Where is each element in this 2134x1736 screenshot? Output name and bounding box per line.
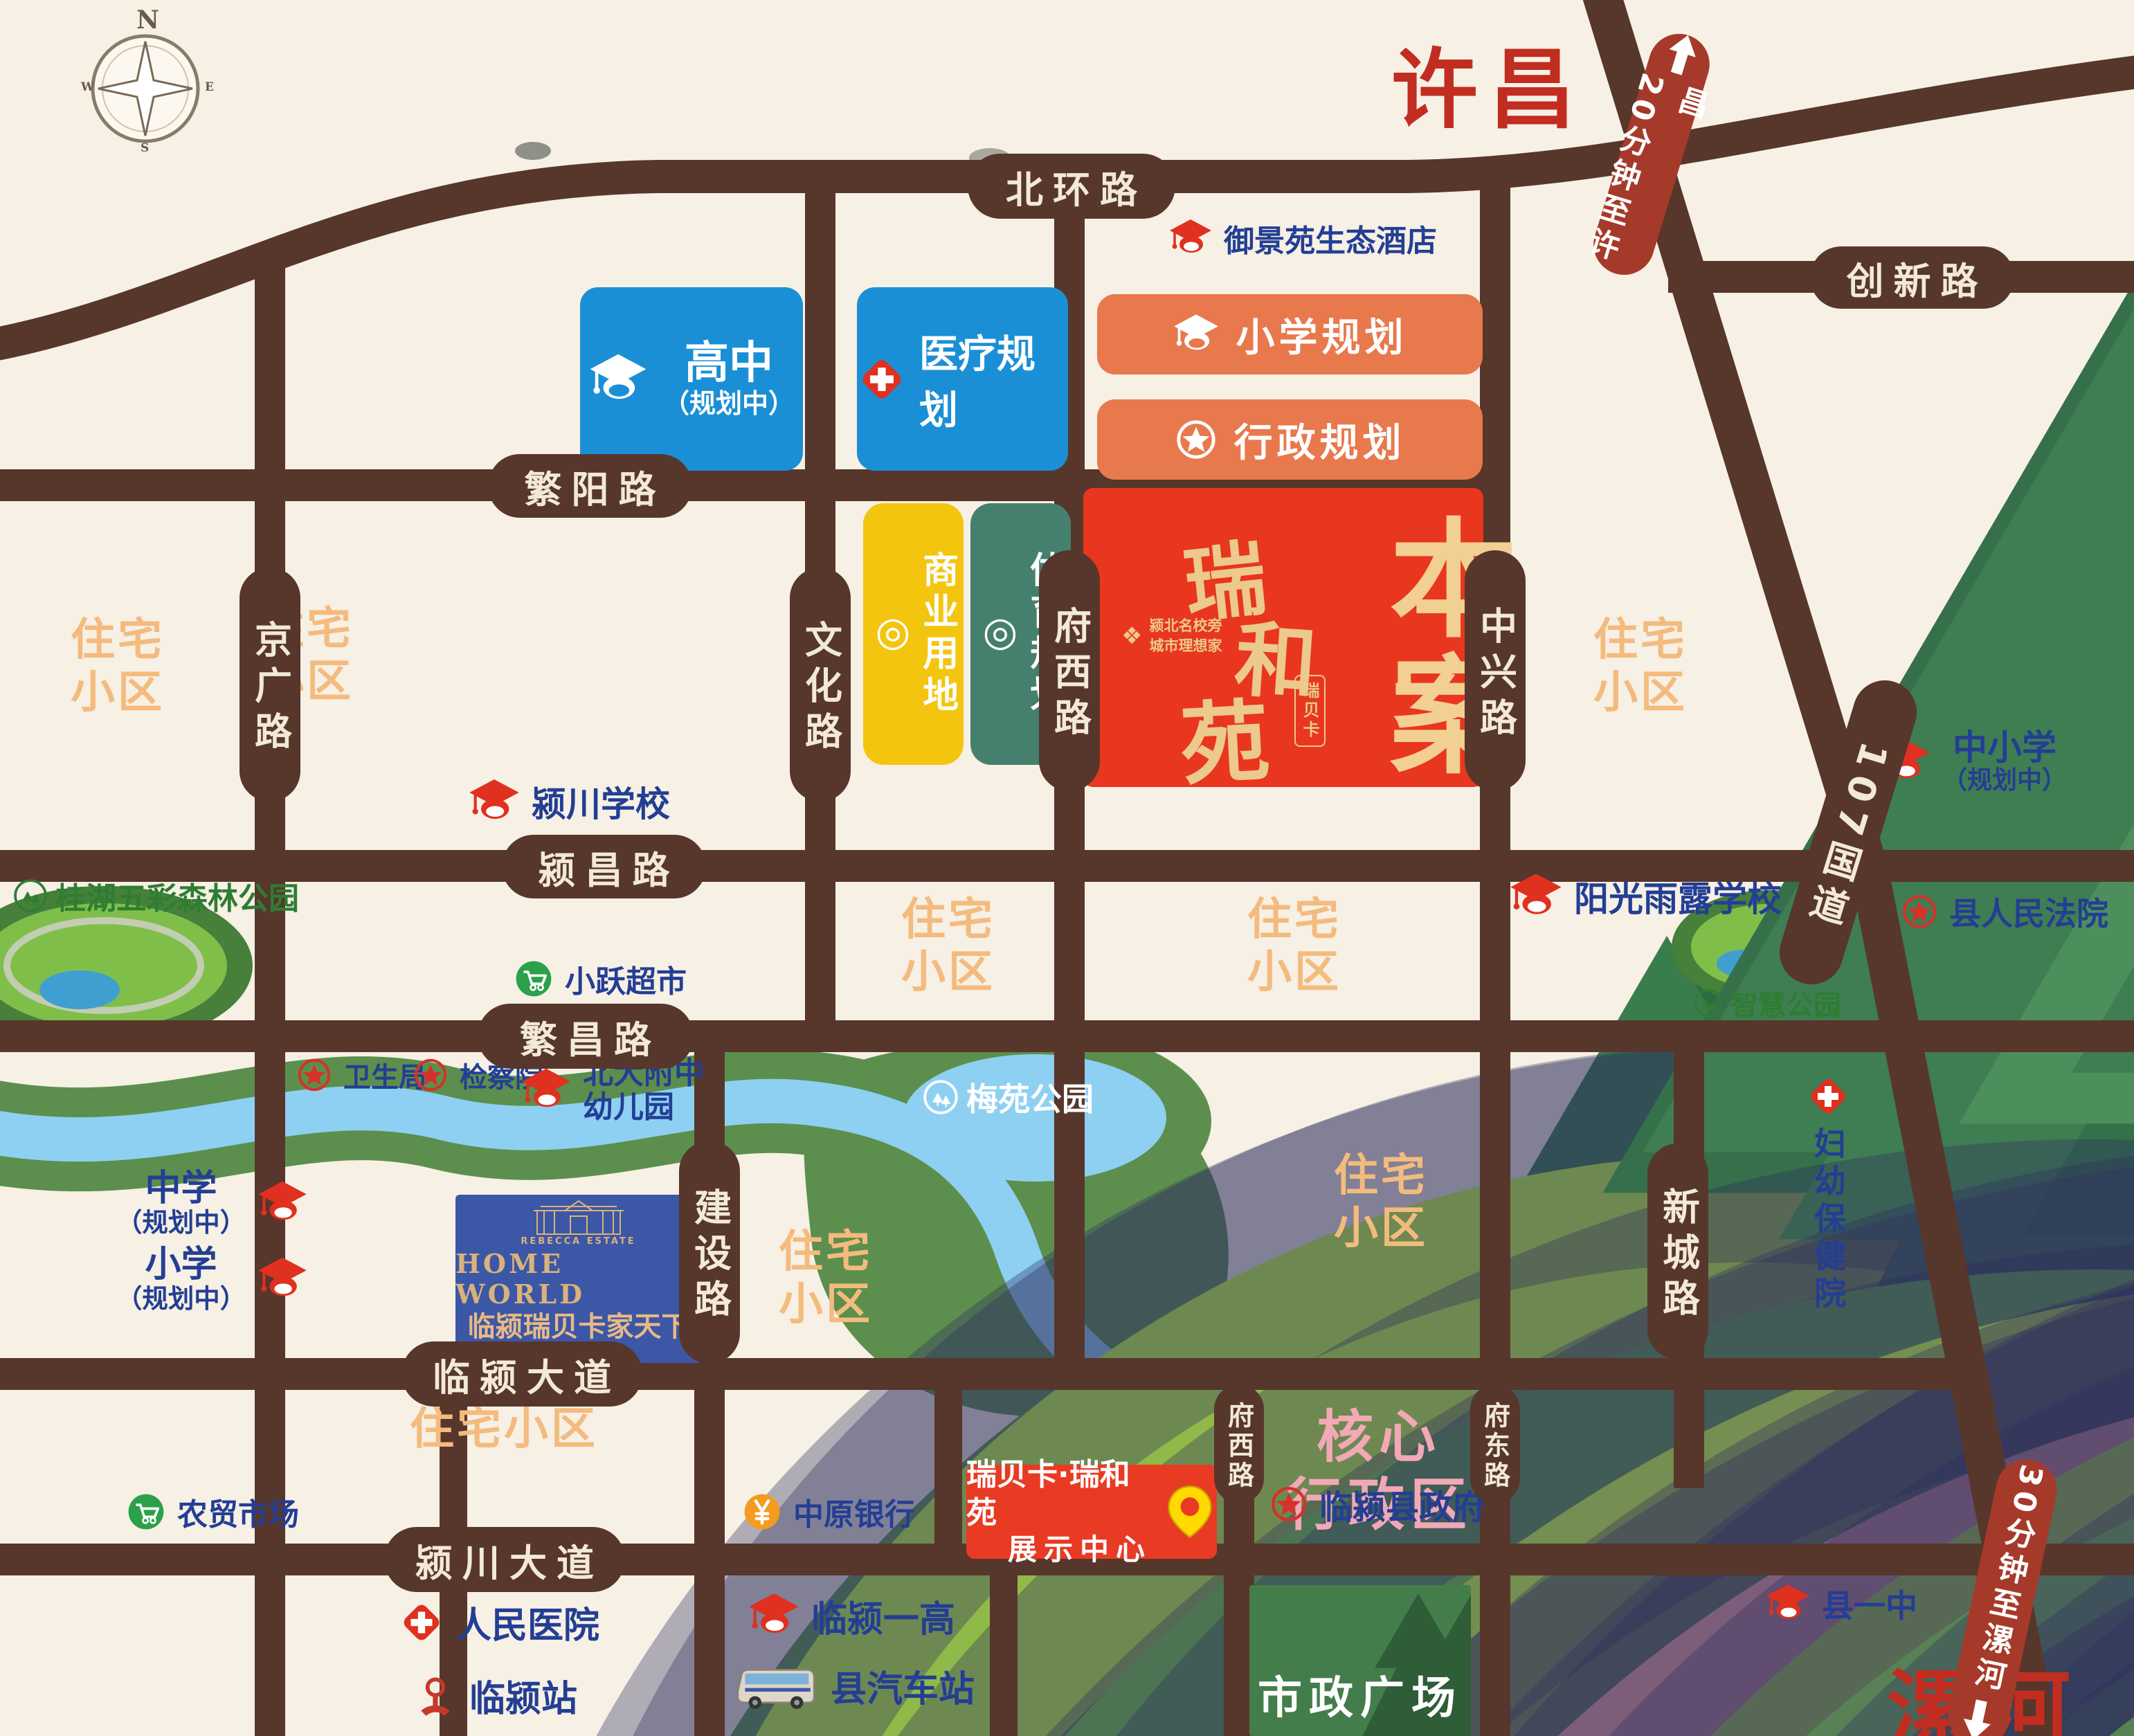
- tree-icon: [12, 878, 48, 914]
- poi-nongmao-market: 农贸市场: [126, 1490, 299, 1534]
- block-primary-school-planned: 小学规划: [1097, 294, 1483, 374]
- road-label-fanyang: 繁阳路: [488, 454, 692, 518]
- poi-zhongyuan-bank: 中原银行: [742, 1490, 915, 1534]
- poi-linying-yigao: 临颍一高: [748, 1589, 955, 1642]
- site-logo-tagline: ❖ 颍北名校旁 城市理想家: [1121, 616, 1222, 657]
- guihu-park-label: 桂湖五彩森林公园: [12, 874, 299, 918]
- compass-west: W: [81, 80, 94, 94]
- arrow-down-icon: [1960, 1697, 1995, 1736]
- road-label-zhongxing: 中兴路: [1465, 550, 1526, 791]
- zhihui-park-label: 智慧公园: [1693, 983, 1841, 1023]
- block-medical-planned: 医疗规划: [857, 287, 1068, 471]
- road-label-wenhua: 文化路: [790, 568, 851, 802]
- block-commercial: ◎ 商业用地: [863, 503, 964, 765]
- residential-area-label: 住宅小区: [896, 894, 1000, 999]
- star-circle-icon: [413, 1057, 449, 1093]
- graduation-cap-icon: [1168, 216, 1213, 260]
- block-admin-planned: 行政规划: [1097, 399, 1483, 480]
- residential-area-label: 住宅小区: [774, 1227, 878, 1331]
- poi-renmin-hospital: 人民医院: [399, 1596, 599, 1648]
- bullseye-icon: ◎: [869, 608, 916, 660]
- poi-county-no1: 县一中: [1765, 1581, 1917, 1627]
- compass-south: S: [141, 141, 149, 155]
- star-circle-icon: [1901, 893, 1938, 930]
- poi-maternity-hospital: 妇幼保健院: [1805, 1074, 1851, 1314]
- graduation-cap-icon: [1765, 1581, 1811, 1627]
- block-homeworld: REBECCA ESTATE HOME WORLD 临颍瑞贝卡家天下 ESTAT…: [455, 1195, 701, 1363]
- graduation-cap-icon: [588, 350, 648, 409]
- map-pin-icon: [1163, 1485, 1217, 1539]
- block-high-school-planned: 高中 （规划中）: [580, 287, 803, 471]
- residential-area-label: 住宅小区: [410, 1404, 598, 1456]
- site-seal: 瑞贝卡: [1294, 675, 1326, 747]
- graduation-cap-icon: [748, 1589, 800, 1642]
- residential-area-label: 住宅小区: [1589, 615, 1692, 719]
- residential-area-label: 住宅小区: [1242, 894, 1346, 999]
- project-site: 瑞 和 苑 ❖ 颍北名校旁 城市理想家 瑞贝卡 本案: [1083, 488, 1483, 787]
- road-label-yingchang: 颍昌路: [502, 835, 706, 898]
- road-label-fanchang: 繁昌路: [478, 1004, 694, 1069]
- road-label-xincheng: 新城路: [1647, 1143, 1708, 1359]
- poi-sunshine-school: 阳光雨露学校: [1509, 869, 1782, 923]
- road-label-beihuan: 北环路: [968, 154, 1175, 219]
- graduation-cap-icon: [257, 1254, 308, 1305]
- road-label-yingchuan-avenue: 颍川大道: [384, 1527, 625, 1592]
- compass-north: N: [136, 6, 159, 35]
- city-xuchang: 许昌: [1391, 19, 1586, 145]
- bullseye-icon: ◎: [977, 608, 1023, 660]
- tree-icon: [1693, 988, 1724, 1018]
- poi-county-government: 临颍县政府: [1269, 1480, 1485, 1528]
- poi-health-bureau: 卫生局: [296, 1055, 426, 1095]
- residential-area-label: 住宅小区: [66, 615, 170, 719]
- graduation-cap-icon: [1173, 311, 1220, 358]
- road-label-linying-avenue: 临颍大道: [401, 1341, 642, 1407]
- graduation-cap-icon: [468, 775, 521, 828]
- yuan-bank-icon: [742, 1492, 782, 1532]
- medical-cross-icon: [1806, 1074, 1850, 1119]
- poi-middle-school-planned: 中学 （规划中）: [116, 1168, 308, 1238]
- poi-linying-station: 临颍站: [413, 1670, 577, 1721]
- shopping-cart-icon: [126, 1492, 166, 1532]
- road-label-fudong: 府东路: [1470, 1384, 1520, 1503]
- arrow-up-icon: [1663, 31, 1701, 78]
- medical-cross-icon: [857, 354, 907, 404]
- residential-area-label: 住宅小区: [1329, 1150, 1433, 1255]
- compass-rose: N W E S: [73, 6, 218, 151]
- star-circle-icon: [1269, 1485, 1308, 1523]
- poi-xiaoyue-market: 小跃超市: [514, 957, 687, 1001]
- block-exhibition-center: 瑞贝卡·瑞和苑 展示中心: [966, 1465, 1217, 1559]
- road-label-jingguang: 京广路: [239, 568, 300, 802]
- poi-primary-school-planned: 小学 （规划中）: [116, 1245, 308, 1314]
- shopping-cart-icon: [514, 959, 554, 999]
- poi-county-court: 县人民法院: [1901, 889, 2108, 934]
- graduation-cap-icon: [257, 1177, 308, 1229]
- bus-icon: [732, 1661, 820, 1712]
- medical-cross-icon: [399, 1600, 444, 1645]
- block-civic-square: 市政广场: [1249, 1585, 1471, 1736]
- road-label-jianshe: 建设路: [679, 1141, 740, 1364]
- star-circle-icon: [1175, 418, 1218, 461]
- star-circle-icon: [296, 1057, 332, 1093]
- compass-east: E: [205, 80, 214, 94]
- tree-icon: [922, 1078, 959, 1116]
- graduation-cap-icon: [1509, 869, 1563, 923]
- poi-bus-station: 县汽车站: [732, 1660, 975, 1712]
- poi-yingchuan-school: 颍川学校: [468, 775, 670, 828]
- poi-hotel: 御景苑生态酒店: [1168, 216, 1437, 260]
- meiyuan-park-label: 梅苑公园: [922, 1074, 1094, 1120]
- location-map: N W E S 许昌 漯河 20分钟至许昌 30分钟至漯河 北环路 创新路 繁阳…: [0, 0, 2134, 1736]
- railway-station-icon: [413, 1673, 458, 1719]
- road-label-chuangxin: 创新路: [1810, 246, 2014, 309]
- graduation-cap-icon: [521, 1065, 572, 1116]
- road-label-fuxi-south: 府西路: [1214, 1384, 1264, 1503]
- road-label-fuxi: 府西路: [1039, 550, 1100, 791]
- estate-building-icon: [527, 1193, 631, 1236]
- seal-flower-icon: ❖: [1121, 622, 1142, 650]
